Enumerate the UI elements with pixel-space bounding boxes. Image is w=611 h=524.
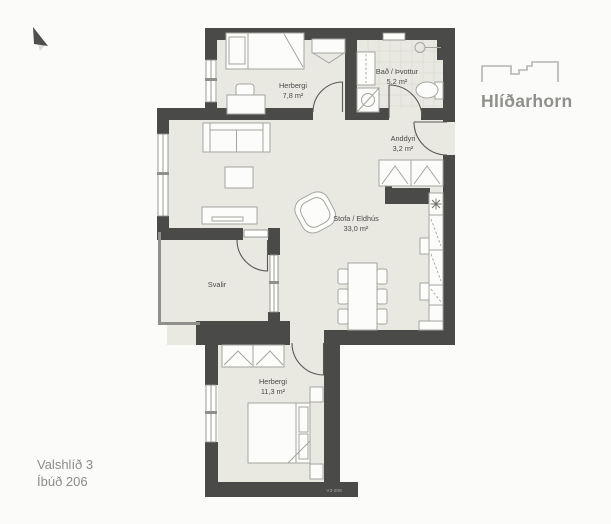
room-label-entry-area: 3,2 m² (393, 144, 414, 153)
dining-chair (338, 269, 348, 284)
balcony-glass-door-panel (244, 230, 268, 237)
entry-closet (379, 160, 443, 186)
nightstand (310, 387, 323, 402)
coffee-table (225, 167, 253, 188)
north-arrow-icon (33, 27, 48, 51)
dining-chair (338, 289, 348, 304)
brand-logo: Hlíðarhorn (481, 60, 601, 112)
dining-chair (377, 309, 387, 324)
desk-chair (236, 84, 254, 96)
kitchen-appliance (420, 283, 429, 300)
address-unit: Íbúð 206 (37, 474, 93, 491)
dining-table (348, 263, 377, 330)
kitchen-appliance (420, 238, 429, 254)
drawing-code: V3-206 (326, 488, 342, 494)
building-outline-icon (481, 60, 561, 84)
address-street: Valshlíð 3 (37, 457, 93, 474)
brand-name: Hlíðarhorn (481, 91, 601, 112)
desk (227, 95, 265, 114)
dining-chair (377, 269, 387, 284)
toilet-bowl (416, 82, 438, 98)
room-label-bathroom-name: Bað / Þvottur (376, 67, 419, 76)
bathroom-vent-window (383, 33, 405, 40)
tv (212, 217, 243, 221)
dining-chair (338, 309, 348, 324)
pillow (299, 407, 308, 432)
room-label-balcony-name: Svalir (208, 280, 227, 289)
address-block: Valshlíð 3 Íbúð 206 (37, 457, 93, 490)
pillow (229, 37, 245, 64)
nightstand (310, 464, 323, 479)
room-label-bedroom-2-area: 11,3 m² (261, 387, 286, 396)
wardrobe (312, 39, 345, 53)
room-label-bedroom-1-name: Herbergi (279, 81, 307, 90)
room-label-living-area: 33,0 m² (344, 224, 369, 233)
kitchen-base-cabinet (419, 321, 443, 330)
room-label-bedroom-2-name: Herbergi (259, 377, 287, 386)
room-label-bathroom-area: 5,2 m² (387, 77, 408, 86)
cooktop-icon (431, 199, 442, 210)
room-label-living-name: Stofa / Eldhús (333, 214, 379, 223)
room-label-bedroom-1-area: 7,8 m² (283, 91, 304, 100)
room-label-entry-name: Anddyri (391, 134, 416, 143)
dining-chair (377, 289, 387, 304)
floor-plan-page: Herbergi 7,8 m² Bað / Þvottur 5,2 m² And… (0, 0, 611, 524)
pillow (299, 434, 308, 459)
